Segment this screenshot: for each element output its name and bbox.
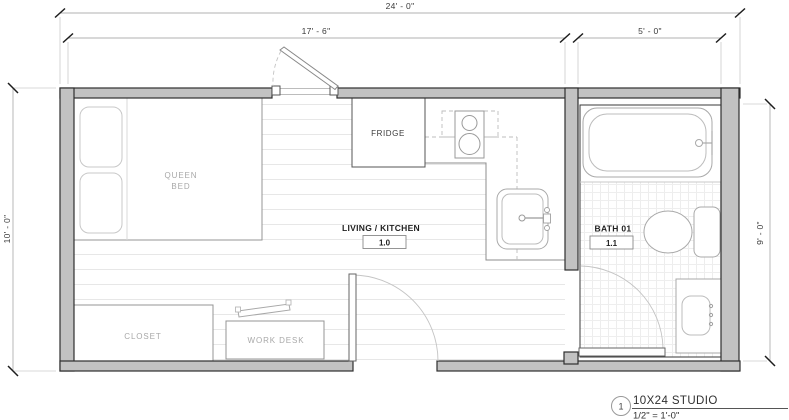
bath-room-label: BATH 01	[595, 224, 632, 234]
dim-living-width: 17' - 6"	[63, 26, 570, 43]
toilet	[644, 207, 720, 257]
pillow-bottom	[80, 173, 122, 233]
dim-overall-width: 24' - 0"	[55, 1, 745, 18]
bath-vanity	[676, 279, 721, 353]
sink-handle-hot	[545, 208, 550, 213]
cooktop	[455, 111, 484, 158]
sink-faucet-body	[544, 214, 551, 223]
bath-door-leaf	[579, 348, 665, 356]
wall-bottom-left	[60, 361, 353, 371]
floor-plan-sheet: FRIDGE QUEEN BED CLOSET WORK DESK	[0, 0, 789, 420]
closet: CLOSET	[74, 305, 213, 361]
wall-left	[60, 88, 74, 371]
wall-top-right	[337, 88, 740, 98]
burner-large	[459, 134, 480, 155]
dim-overall-height: 10' - 0"	[2, 83, 18, 376]
desk-label: WORK DESK	[248, 336, 305, 345]
wall-bath-door-stub	[564, 352, 578, 364]
queen-bed: QUEEN BED	[74, 98, 262, 240]
entry-door-leaf	[280, 47, 338, 90]
kitchen-sink	[497, 189, 551, 249]
dim-living-width-text: 17' - 6"	[302, 26, 331, 36]
dim-bath-height: 9' - 0"	[755, 99, 775, 366]
wall-bath-partition	[565, 88, 578, 270]
wall-bottom-right	[437, 361, 740, 371]
dim-bath-width-text: 5' - 0"	[638, 26, 662, 36]
drawing-scale: 1/2" = 1'-0"	[633, 411, 679, 420]
fridge-label: FRIDGE	[371, 129, 405, 138]
living-room-label: LIVING / KITCHEN	[342, 223, 420, 233]
dim-bath-height-text: 9' - 0"	[755, 221, 765, 245]
title-block: 1 10X24 STUDIO 1/2" = 1'-0"	[612, 395, 789, 420]
bed-label-line2: BED	[171, 182, 190, 191]
dim-bath-width: 5' - 0"	[573, 26, 726, 43]
entry-door-swing-arc	[273, 51, 281, 86]
living-room-tag: 1.0	[379, 239, 391, 248]
pillow-top	[80, 107, 122, 167]
toilet-bowl	[644, 211, 692, 253]
bathtub	[580, 108, 721, 182]
interior-door-leaf	[349, 274, 356, 361]
toilet-tank	[694, 207, 720, 257]
entry-threshold	[280, 89, 330, 95]
dim-overall-width-text: 24' - 0"	[386, 1, 415, 11]
sink-handle-cold	[545, 226, 550, 231]
drawing-title: 10X24 STUDIO	[633, 395, 718, 407]
entry-door	[272, 47, 338, 95]
burner-small	[462, 116, 477, 131]
entry-jamb-left	[272, 86, 280, 95]
fridge: FRIDGE	[352, 98, 425, 167]
floor-plan-drawing: FRIDGE QUEEN BED CLOSET WORK DESK	[0, 0, 789, 420]
wall-top-left	[60, 88, 272, 98]
bed-label-line1: QUEEN	[165, 171, 198, 180]
closet-label: CLOSET	[124, 332, 161, 341]
sheet-number: 1	[618, 402, 623, 412]
bath-room-tag: 1.1	[606, 239, 618, 248]
dim-overall-height-text: 10' - 0"	[2, 215, 12, 244]
wall-right	[721, 88, 739, 371]
